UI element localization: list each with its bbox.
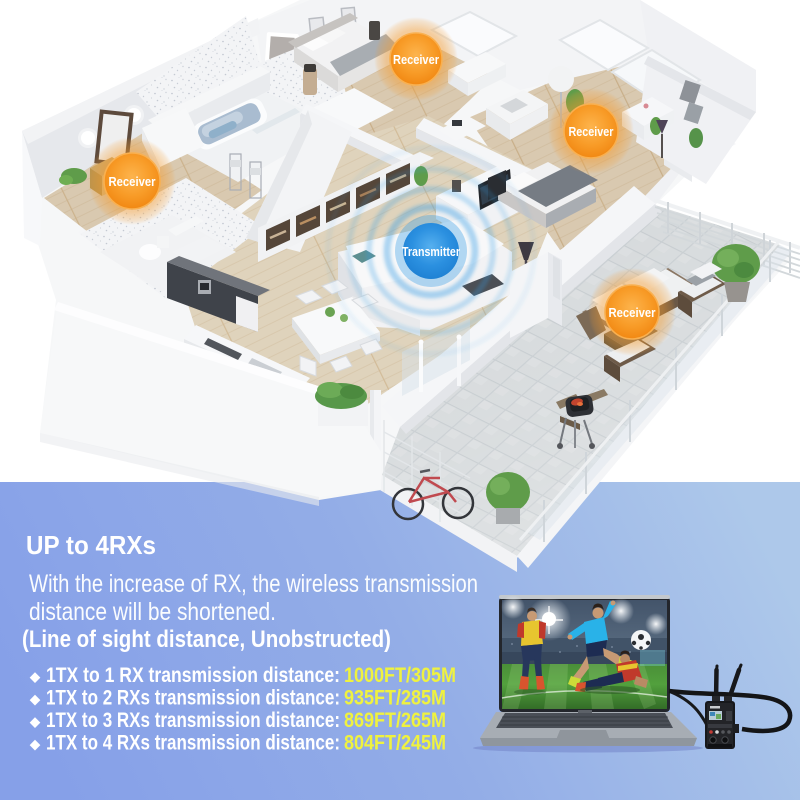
svg-text:(Line of sight distance, Unobs: (Line of sight distance, Unobstructed) [22, 626, 391, 653]
svg-text:◆: ◆ [29, 714, 41, 729]
svg-text:Transmitter: Transmitter [402, 244, 460, 259]
svg-text:869FT/265M: 869FT/265M [344, 709, 446, 732]
svg-text:1TX to 4 RXs transmission dist: 1TX to 4 RXs transmission distance: [46, 732, 340, 755]
svg-text:Receiver: Receiver [609, 306, 656, 320]
svg-text:1000FT/305M: 1000FT/305M [344, 664, 456, 687]
svg-text:Receiver: Receiver [393, 53, 439, 67]
svg-text:◆: ◆ [29, 692, 41, 707]
svg-text:804FT/245M: 804FT/245M [344, 732, 446, 755]
svg-text:distance will be shortened.: distance will be shortened. [29, 598, 276, 626]
svg-text:UP to 4RXs: UP to 4RXs [26, 530, 156, 560]
svg-text:◆: ◆ [29, 669, 41, 684]
svg-text:1TX to 2 RXs transmission dist: 1TX to 2 RXs transmission distance: [46, 687, 340, 710]
svg-text:935FT/285M: 935FT/285M [344, 687, 446, 710]
svg-text:1TX to 1 RX transmission dis: 1TX to 1 RX transmission distance: [46, 664, 340, 687]
svg-text:Receiver: Receiver [569, 125, 614, 139]
svg-text:1TX to 3 RXs transmission dist: 1TX to 3 RXs transmission distance: [46, 709, 340, 732]
svg-text:Receiver: Receiver [109, 175, 156, 189]
svg-text:◆: ◆ [29, 737, 41, 752]
svg-text:With the increase of RX, the w: With the increase of RX, the wireless tr… [29, 570, 478, 598]
